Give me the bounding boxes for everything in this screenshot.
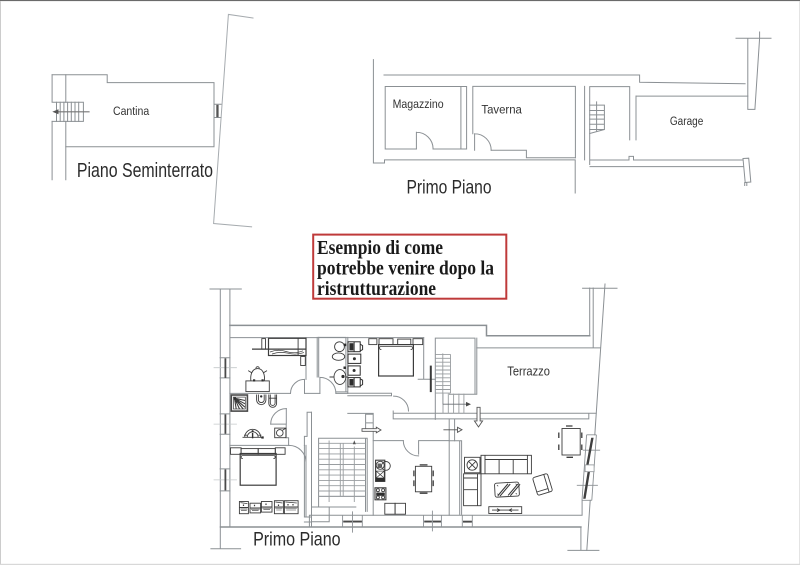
svg-text:Magazzino: Magazzino bbox=[393, 97, 444, 111]
svg-text:Taverna: Taverna bbox=[481, 102, 522, 116]
svg-text:Primo Piano: Primo Piano bbox=[407, 177, 492, 198]
svg-text:ristrutturazione: ristrutturazione bbox=[317, 278, 436, 300]
svg-text:Esempio di come: Esempio di come bbox=[317, 237, 443, 259]
svg-text:Cantina: Cantina bbox=[113, 104, 149, 118]
svg-text:Garage: Garage bbox=[670, 116, 703, 128]
svg-text:potrebbe venire dopo la: potrebbe venire dopo la bbox=[317, 258, 494, 280]
svg-text:Piano Seminterrato: Piano Seminterrato bbox=[77, 160, 213, 182]
svg-text:Primo Piano: Primo Piano bbox=[253, 529, 341, 551]
svg-text:Terrazzo: Terrazzo bbox=[507, 364, 550, 379]
